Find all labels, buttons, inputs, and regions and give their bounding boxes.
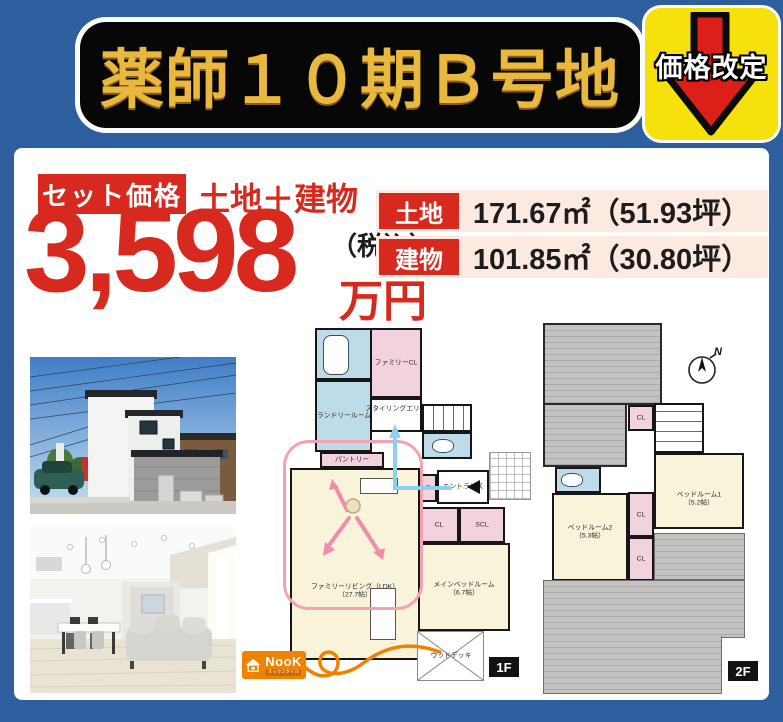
closet-b-2f: CL [628,492,654,537]
main-bedroom-label-wrap: メインベッドルーム （6.7帖） [434,581,495,597]
price-revision-badge: 価格改定 [645,8,778,140]
family-closet-1f: ファミリーCL [370,328,422,398]
property-title: 薬師１０期Ｂ号地 [100,29,620,121]
spec-label-land: 土地 [379,193,459,229]
spec-value-building: 101.85㎡（30.80坪） [459,236,764,278]
deck-label: ウッドデッキ [430,652,471,660]
price-amount: 3,598 [24,192,294,310]
shoes-closet-1f: SCL [459,507,505,543]
bedroom2-label: ベッドルーム2 [568,524,612,532]
wood-deck-1f: ウッドデッキ [417,631,484,681]
nook-sub: ヌックスタイル [266,669,301,675]
exterior-photo [30,357,236,514]
entrance-1f: エントランス [437,470,489,504]
styling-area-1f: スタイリングエリア [370,398,422,432]
property-title-box: 薬師１０期Ｂ号地 [80,22,640,128]
styling-area-label: スタイリングエリア [365,405,426,413]
bedroom2-label-wrap: ベッドルーム2 （5.3帖） [568,524,612,540]
shoes-closet-label: SCL [475,521,488,529]
interior-photo [30,527,236,693]
spec-row-land: 土地 171.67㎡（51.93坪） [376,190,768,232]
closet-label: CL [434,521,443,529]
laundry-room-1f: ランドリールーム [315,380,372,452]
spec-row-building: 建物 101.85㎡（30.80坪） [376,236,768,278]
closet-c-label: CL [637,555,646,563]
price-revision-label: 価格改定 [645,46,778,85]
bathtub-icon [323,335,349,375]
family-closet-label: ファミリーCL [375,359,418,367]
closet-1f: CL [418,507,459,543]
balcony-left-2f [543,403,627,467]
entrance-door-marker [467,480,480,494]
closet-c-2f: CL [628,537,654,581]
closet-a-label: CL [637,414,646,422]
toilet-2f [555,467,601,493]
roof-right-2f [654,533,745,580]
main-bedroom-label: メインベッドルーム [434,581,495,589]
exterior-photo-art [30,357,236,514]
house-icon [245,656,261,674]
porch-1f [489,452,531,500]
bedroom1-size-label: （5.2帖） [677,499,721,507]
main-bedroom-size-label: （6.7帖） [434,589,495,597]
spec-table: 土地 171.67㎡（51.93坪） 建物 101.85㎡（30.80坪） [376,190,768,282]
content-card: セット価格 土地＋建物 3,598 （税込） 万円 土地 171.67㎡（51.… [14,148,769,700]
stairs-1f [422,404,472,432]
floor-plan-2f: CL ベッドルーム1 （5.2帖） ベッドルーム2 （5.3帖） CL [540,318,770,700]
laundry-label: ランドリールーム [316,412,370,420]
bedroom2-size-label: （5.3帖） [568,532,612,540]
floor-badge-1f: 1F [489,657,519,677]
roof-lower-2f [543,636,722,694]
kitchen-counter [360,478,398,494]
toilet-icon [432,439,454,453]
main-bedroom-1f: メインベッドルーム （6.7帖） [418,543,510,631]
closet-b-label: CL [637,511,646,519]
stairs-2f [654,403,704,453]
entrance-closet-1f: CL [420,474,437,502]
bathroom-1f [315,328,372,380]
pantry-label: パントリー [335,456,369,464]
toilet-icon-2f [561,473,583,487]
spec-value-land: 171.67㎡（51.93坪） [459,190,764,232]
bedroom1-label-wrap: ベッドルーム1 （5.2帖） [677,491,721,507]
nook-logo: NooK ヌックスタイル [242,651,306,679]
nook-text: NooK ヌックスタイル [264,655,303,676]
living-room-1f: ファミリーリビング（LDK） （27.7帖） [290,468,420,660]
bedroom1-2f: ベッドルーム1 （5.2帖） [654,453,744,529]
compass-n-label: N [714,346,722,358]
flyer-page: 薬師１０期Ｂ号地 価格改定 セット価格 土地＋建物 3,598 （税込） 万円 … [0,0,783,722]
interior-photo-art [30,527,236,693]
pantry-1f: パントリー [320,452,384,468]
sofa-sketch [370,588,396,640]
floor-badge-2f: 2F [728,661,758,681]
closet-a-2f: CL [628,405,654,431]
roof-upper-2f [543,580,745,638]
spec-label-building: 建物 [379,239,459,275]
bedroom2-2f: ベッドルーム2 （5.3帖） [552,493,628,581]
toilet-1f [422,432,472,459]
entrance-closet-label: CL [425,485,431,491]
balcony-top-2f [543,323,662,405]
nook-name: NooK [265,655,302,668]
floor-plan-1f: ファミリーCL ランドリールーム スタイリングエリア パントリー ファミリーリビ… [245,322,535,687]
